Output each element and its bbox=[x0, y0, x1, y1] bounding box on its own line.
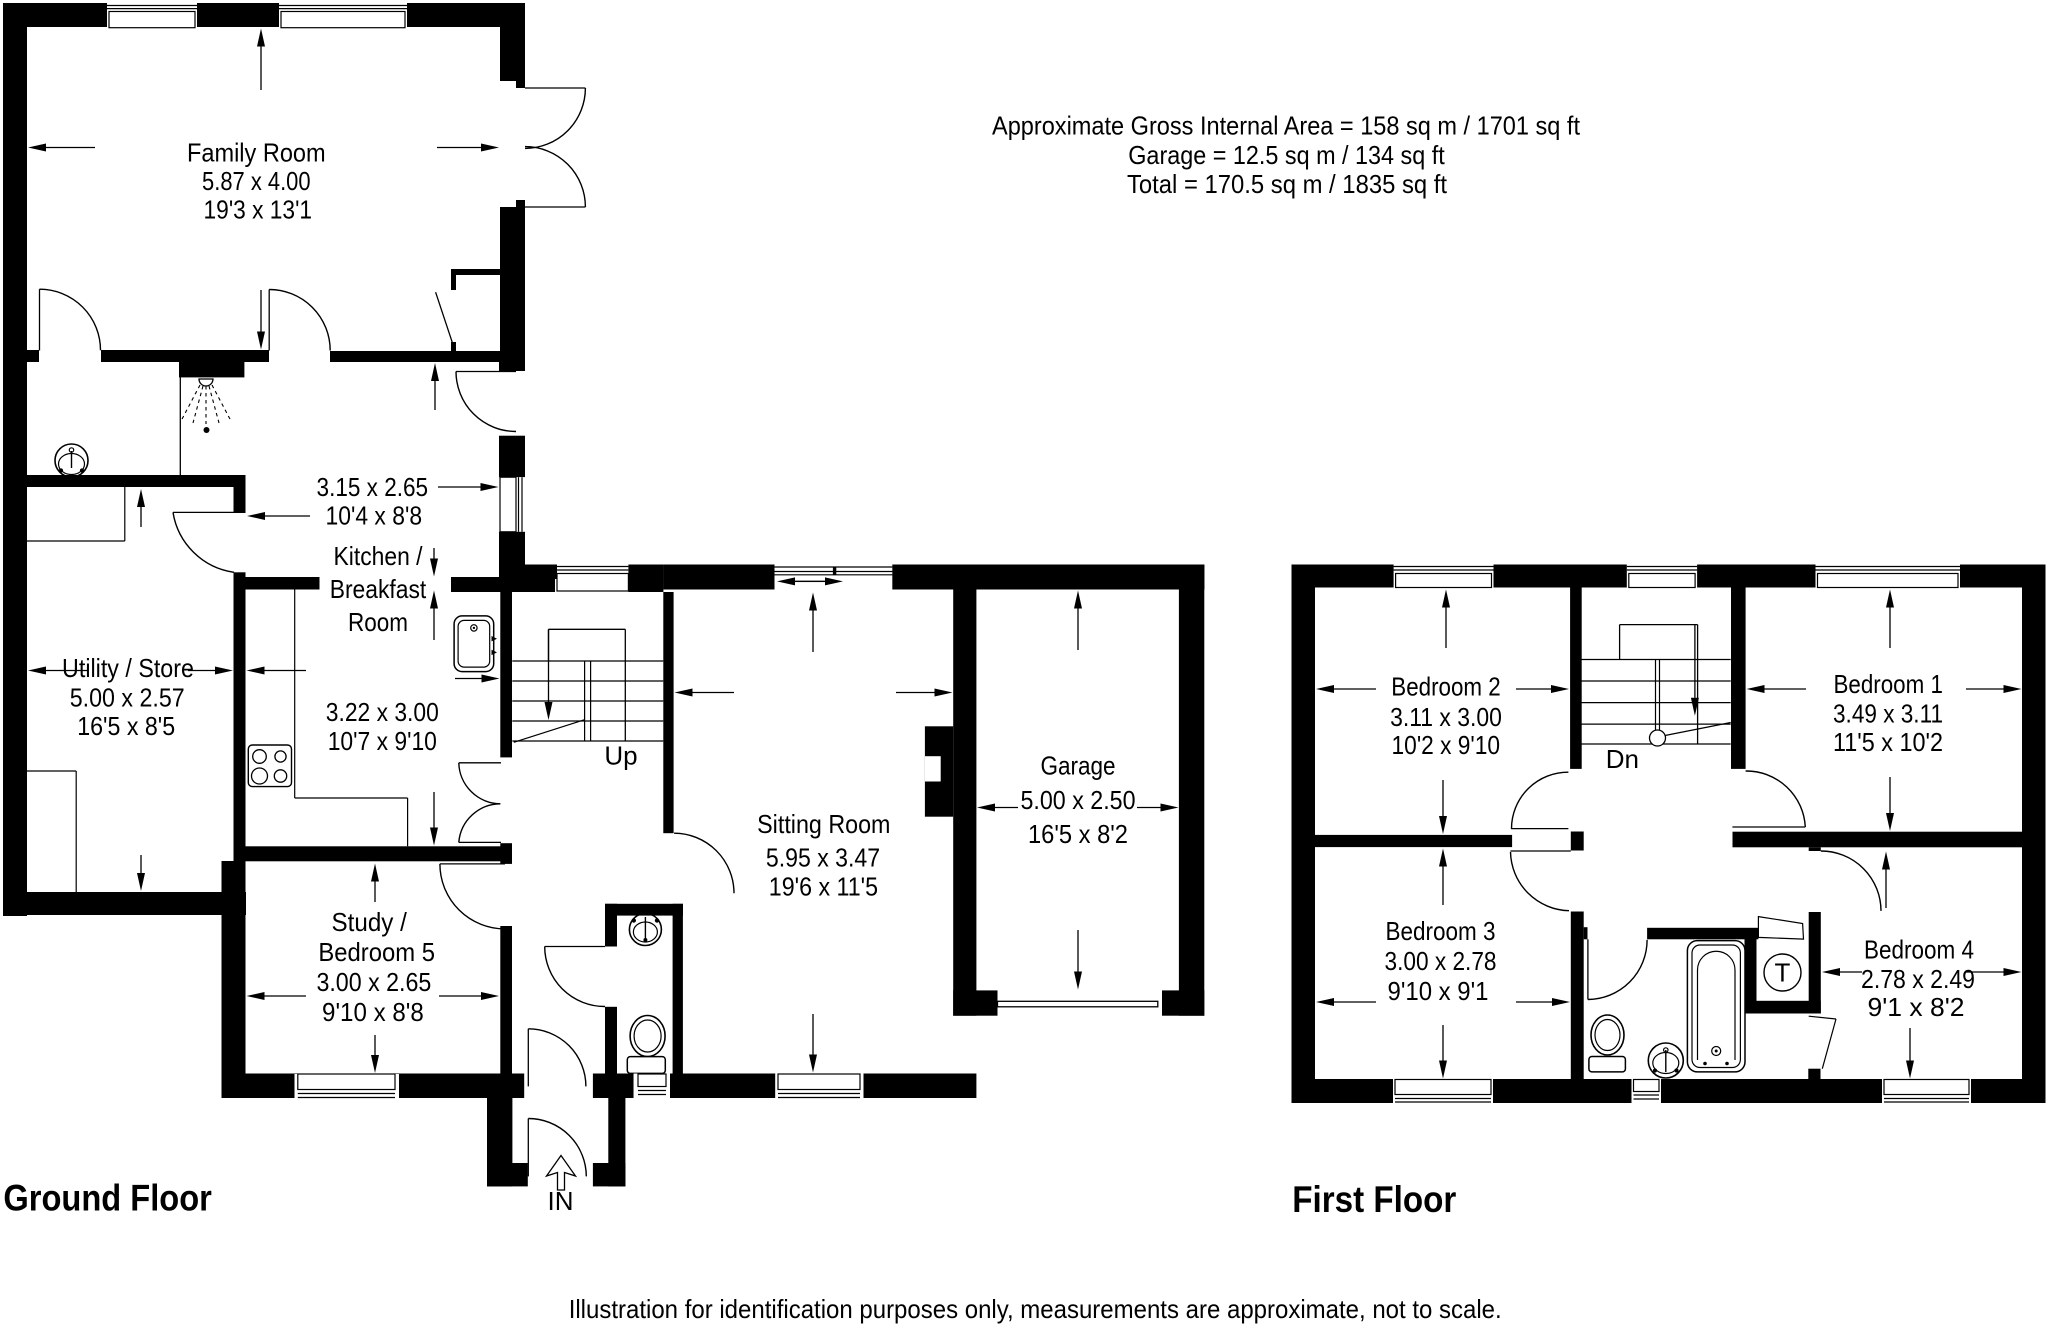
svg-text:10'2 x 9'10: 10'2 x 9'10 bbox=[1392, 730, 1501, 760]
svg-text:Total = 170.5 sq m / 1835 sq f: Total = 170.5 sq m / 1835 sq ft bbox=[1127, 169, 1448, 199]
svg-text:5.00 x 2.57: 5.00 x 2.57 bbox=[70, 683, 185, 713]
svg-text:19'6 x 11'5: 19'6 x 11'5 bbox=[769, 872, 878, 902]
svg-text:9'10 x 8'8: 9'10 x 8'8 bbox=[322, 997, 424, 1027]
svg-text:3.00 x 2.65: 3.00 x 2.65 bbox=[316, 967, 431, 997]
svg-text:5.00 x 2.50: 5.00 x 2.50 bbox=[1021, 785, 1136, 815]
svg-text:9'1 x 8'2: 9'1 x 8'2 bbox=[1868, 992, 1965, 1022]
svg-text:Approximate Gross Internal Are: Approximate Gross Internal Area = 158 sq… bbox=[992, 111, 1581, 141]
svg-text:3.15 x 2.65: 3.15 x 2.65 bbox=[317, 472, 429, 502]
svg-text:IN: IN bbox=[548, 1186, 574, 1216]
svg-text:Kitchen /: Kitchen / bbox=[334, 541, 424, 571]
svg-text:3.22 x 3.00: 3.22 x 3.00 bbox=[326, 697, 439, 727]
svg-text:3.11 x 3.00: 3.11 x 3.00 bbox=[1390, 702, 1502, 732]
svg-text:Utility / Store: Utility / Store bbox=[62, 653, 194, 683]
svg-text:Illustration for identificatio: Illustration for identification purposes… bbox=[569, 1294, 1502, 1324]
svg-text:3.49 x 3.11: 3.49 x 3.11 bbox=[1833, 699, 1943, 729]
svg-text:9'10 x 9'1: 9'10 x 9'1 bbox=[1388, 976, 1489, 1006]
svg-text:3.00 x 2.78: 3.00 x 2.78 bbox=[1385, 946, 1497, 976]
svg-text:Bedroom 4: Bedroom 4 bbox=[1864, 935, 1974, 965]
svg-text:Study /: Study / bbox=[332, 907, 408, 937]
svg-text:Dn: Dn bbox=[1606, 744, 1639, 774]
svg-text:Sitting Room: Sitting Room bbox=[757, 809, 890, 839]
svg-text:Bedroom 1: Bedroom 1 bbox=[1834, 669, 1943, 699]
svg-text:16'5 x 8'5: 16'5 x 8'5 bbox=[77, 711, 175, 741]
svg-text:2.78 x 2.49: 2.78 x 2.49 bbox=[1861, 964, 1975, 994]
svg-text:Bedroom 2: Bedroom 2 bbox=[1391, 671, 1500, 701]
svg-text:Family Room: Family Room bbox=[187, 137, 326, 167]
svg-text:Bedroom 5: Bedroom 5 bbox=[318, 937, 435, 967]
svg-text:T: T bbox=[1775, 958, 1791, 988]
svg-text:First Floor: First Floor bbox=[1292, 1179, 1456, 1220]
svg-text:Garage: Garage bbox=[1040, 751, 1115, 781]
svg-text:Up: Up bbox=[604, 741, 637, 771]
svg-text:10'7 x 9'10: 10'7 x 9'10 bbox=[328, 726, 437, 756]
svg-text:Bedroom 3: Bedroom 3 bbox=[1386, 916, 1496, 946]
svg-text:5.95 x 3.47: 5.95 x 3.47 bbox=[766, 843, 880, 873]
svg-text:Ground Floor: Ground Floor bbox=[3, 1178, 212, 1219]
svg-text:10'4 x 8'8: 10'4 x 8'8 bbox=[326, 501, 423, 531]
svg-text:19'3 x 13'1: 19'3 x 13'1 bbox=[204, 195, 313, 225]
svg-text:Garage = 12.5 sq m / 134 sq ft: Garage = 12.5 sq m / 134 sq ft bbox=[1128, 140, 1445, 170]
svg-text:5.87 x 4.00: 5.87 x 4.00 bbox=[202, 166, 311, 196]
svg-text:16'5 x 8'2: 16'5 x 8'2 bbox=[1028, 819, 1128, 849]
svg-text:11'5 x 10'2: 11'5 x 10'2 bbox=[1833, 727, 1943, 757]
svg-text:Breakfast: Breakfast bbox=[330, 574, 427, 604]
svg-text:Room: Room bbox=[348, 607, 408, 637]
